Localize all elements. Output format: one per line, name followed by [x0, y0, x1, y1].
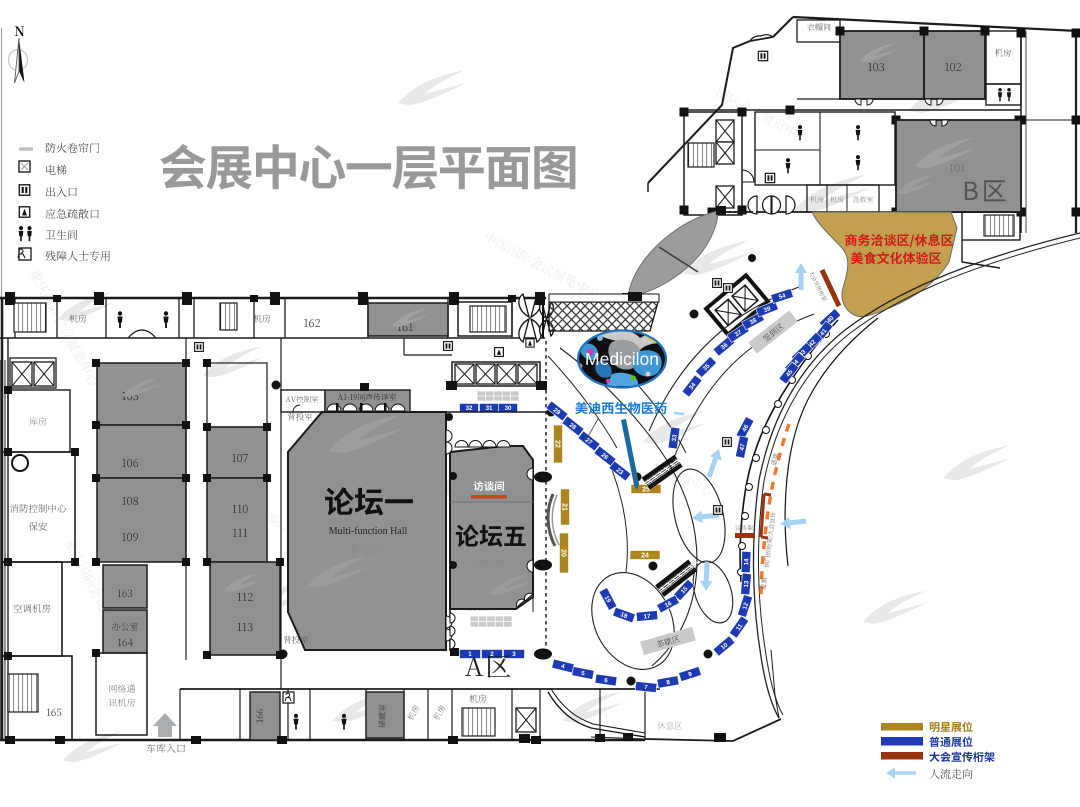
svg-text:14: 14 — [743, 558, 750, 566]
svg-text:13: 13 — [743, 580, 751, 588]
svg-text:Multi-function Hall: Multi-function Hall — [329, 526, 408, 537]
svg-text:31: 31 — [486, 405, 493, 412]
svg-text:21: 21 — [560, 503, 567, 511]
svg-text:22: 22 — [553, 440, 560, 448]
svg-text:20: 20 — [559, 549, 566, 557]
svg-text:30: 30 — [505, 405, 512, 412]
svg-text:17: 17 — [643, 613, 651, 621]
svg-text:32: 32 — [466, 405, 473, 412]
svg-text:Medicilon: Medicilon — [585, 349, 659, 369]
svg-text:3: 3 — [512, 651, 516, 658]
svg-text:24: 24 — [641, 553, 649, 560]
svg-text:2: 2 — [490, 651, 494, 658]
svg-text:1: 1 — [468, 651, 472, 658]
